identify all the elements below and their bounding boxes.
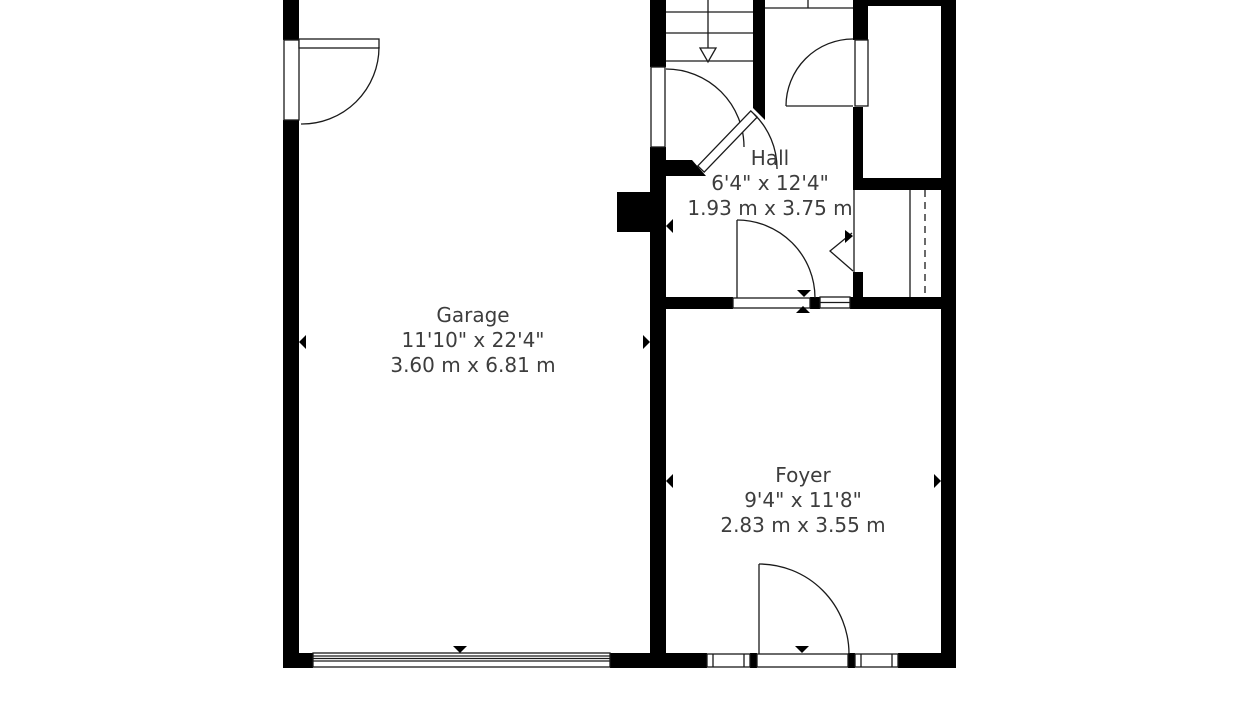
garage-right-marker-icon bbox=[643, 335, 650, 349]
wall-hall-right-mid bbox=[853, 107, 863, 190]
garage-door-panel bbox=[313, 653, 610, 667]
wall-chimney-block bbox=[617, 192, 650, 232]
foyer-right-marker-icon bbox=[934, 474, 941, 488]
wall-bottom-2 bbox=[610, 653, 707, 668]
front-door-swing-arc bbox=[759, 564, 849, 654]
wall-left-top bbox=[283, 0, 299, 40]
floor-plan: Garage 11'10" x 22'4" 3.60 m x 6.81 m Ha… bbox=[0, 0, 1240, 720]
wall-bottom-3 bbox=[750, 653, 757, 668]
garage-side-door-frame bbox=[284, 40, 299, 120]
hall-dimensions-metric: 1.93 m x 3.75 m bbox=[687, 196, 852, 221]
stair-hall-door-frame bbox=[651, 67, 665, 147]
hall-foyer-door-swing-arc bbox=[737, 220, 815, 298]
foyer-dimensions-imperial: 9'4" x 11'8" bbox=[720, 488, 885, 513]
floor-plan-canvas bbox=[0, 0, 1240, 720]
hall-bottom-marker-icon bbox=[797, 290, 811, 297]
foyer-dimensions-metric: 2.83 m x 3.55 m bbox=[720, 513, 885, 538]
garage-door bbox=[313, 653, 610, 667]
garage-bottom-marker-icon bbox=[453, 646, 467, 653]
stair-direction-arrowhead bbox=[700, 48, 716, 62]
hall-dimensions-imperial: 6'4" x 12'4" bbox=[687, 171, 852, 196]
hall-name: Hall bbox=[687, 146, 852, 171]
foyer-left-marker-icon bbox=[666, 474, 673, 488]
wall-hall-foyer-left bbox=[650, 297, 733, 309]
wall-right-outer bbox=[941, 0, 956, 668]
wall-garage-right-top bbox=[650, 0, 666, 67]
wall-closet-left-stub bbox=[853, 272, 863, 298]
garage-side-door-leaf bbox=[299, 39, 379, 48]
hall-right-marker-icon bbox=[845, 230, 853, 243]
hall-foyer-door-threshold bbox=[733, 298, 810, 308]
front-door-threshold bbox=[757, 654, 848, 667]
garage-label: Garage 11'10" x 22'4" 3.60 m x 6.81 m bbox=[390, 303, 555, 378]
garage-side-door-swing-arc bbox=[301, 47, 379, 124]
stairs bbox=[666, 0, 753, 62]
wall-closet-top bbox=[853, 178, 941, 190]
upper-room-door-frame bbox=[855, 40, 868, 106]
wall-stairs-right bbox=[753, 0, 765, 108]
foyer-name: Foyer bbox=[720, 463, 885, 488]
foyer-label: Foyer 9'4" x 11'8" 2.83 m x 3.55 m bbox=[720, 463, 885, 538]
upper-room-door bbox=[786, 39, 868, 106]
garage-side-door bbox=[284, 39, 379, 124]
top-window bbox=[765, 0, 853, 8]
wall-bottom-4 bbox=[848, 653, 855, 668]
garage-name: Garage bbox=[390, 303, 555, 328]
garage-dimensions-metric: 3.60 m x 6.81 m bbox=[390, 353, 555, 378]
hall-label: Hall 6'4" x 12'4" 1.93 m x 3.75 m bbox=[687, 146, 852, 221]
upper-room-door-swing-arc bbox=[786, 39, 853, 106]
garage-dimensions-imperial: 11'10" x 22'4" bbox=[390, 328, 555, 353]
garage-left-marker-icon bbox=[299, 335, 306, 349]
wall-hall-foyer-mid bbox=[810, 297, 820, 309]
wall-hall-foyer-right bbox=[850, 297, 956, 309]
wall-upper-room-top bbox=[863, 0, 941, 6]
wall-left-main bbox=[283, 120, 299, 668]
foyer-bottom-marker-icon bbox=[795, 646, 809, 653]
extent-markers bbox=[299, 219, 941, 653]
hall-left-marker-icon bbox=[666, 219, 673, 233]
wall-bottom-5 bbox=[898, 653, 956, 668]
wall-garage-right-main bbox=[650, 147, 666, 653]
wall-bottom-1 bbox=[283, 653, 313, 668]
hall-wall-window bbox=[820, 297, 850, 308]
